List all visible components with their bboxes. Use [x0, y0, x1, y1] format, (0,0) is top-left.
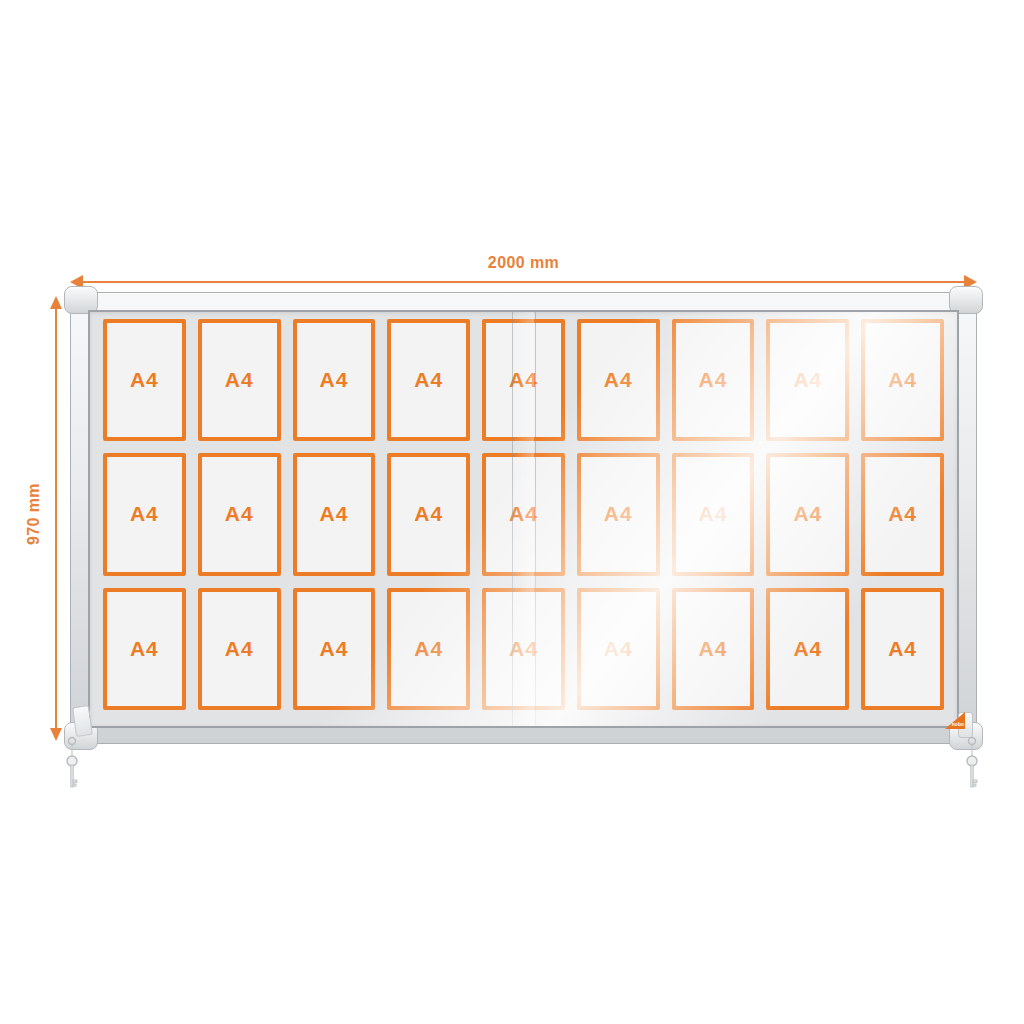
a4-slot-label: A4 — [414, 637, 443, 661]
a4-slot-label: A4 — [793, 368, 822, 392]
a4-slot-label: A4 — [888, 368, 917, 392]
a4-slot-label: A4 — [888, 637, 917, 661]
a4-slot-label: A4 — [225, 368, 254, 392]
a4-slot-label: A4 — [699, 637, 728, 661]
a4-slot: A4 — [387, 588, 470, 710]
a4-slot: A4 — [387, 319, 470, 441]
a4-slot-label: A4 — [888, 502, 917, 526]
arrow-up-icon — [50, 296, 62, 309]
a4-slot: A4 — [293, 319, 376, 441]
display-case: A4A4A4A4A4A4A4A4A4A4A4A4A4A4A4A4A4A4A4A4… — [70, 292, 977, 744]
a4-slot: A4 — [103, 319, 186, 441]
a4-slot: A4 — [672, 319, 755, 441]
a4-slot: A4 — [293, 588, 376, 710]
a4-slot: A4 — [293, 453, 376, 575]
corner-cap-top-right — [949, 286, 983, 314]
nobo-badge-label: nobo — [952, 721, 964, 727]
a4-slot-label: A4 — [699, 502, 728, 526]
a4-slot-label: A4 — [793, 637, 822, 661]
a4-slot-label: A4 — [414, 502, 443, 526]
a4-slot: A4 — [672, 453, 755, 575]
arrow-down-icon — [50, 728, 62, 741]
a4-slot-label: A4 — [130, 637, 159, 661]
height-dimension-line — [55, 303, 57, 733]
a4-slot: A4 — [861, 453, 944, 575]
a4-slot: A4 — [577, 588, 660, 710]
a4-slot: A4 — [861, 588, 944, 710]
a4-slot-label: A4 — [699, 368, 728, 392]
a4-slot: A4 — [766, 319, 849, 441]
a4-slot-label: A4 — [604, 368, 633, 392]
door-seam-sheen — [513, 312, 534, 726]
key-icon — [63, 736, 81, 798]
a4-slot: A4 — [861, 319, 944, 441]
a4-slot: A4 — [198, 588, 281, 710]
key-icon — [963, 736, 981, 798]
a4-slot-label: A4 — [604, 502, 633, 526]
a4-slot: A4 — [766, 453, 849, 575]
a4-slot-label: A4 — [604, 637, 633, 661]
a4-slot-label: A4 — [225, 637, 254, 661]
a4-slot-label: A4 — [793, 502, 822, 526]
a4-slot: A4 — [103, 453, 186, 575]
a4-slot-label: A4 — [320, 637, 349, 661]
a4-slot-label: A4 — [130, 502, 159, 526]
corner-cap-top-left — [64, 286, 98, 314]
a4-slot: A4 — [198, 453, 281, 575]
door-seam-right — [535, 312, 536, 726]
a4-slot: A4 — [766, 588, 849, 710]
a4-slot: A4 — [387, 453, 470, 575]
a4-slot: A4 — [577, 453, 660, 575]
height-dimension-label: 970 mm — [25, 483, 43, 545]
glass-interior: A4A4A4A4A4A4A4A4A4A4A4A4A4A4A4A4A4A4A4A4… — [90, 312, 957, 726]
a4-slot: A4 — [198, 319, 281, 441]
a4-slot-label: A4 — [320, 368, 349, 392]
width-dimension-label: 2000 mm — [70, 254, 977, 272]
a4-slot: A4 — [103, 588, 186, 710]
a4-slot-label: A4 — [225, 502, 254, 526]
a4-slot-label: A4 — [414, 368, 443, 392]
a4-slot: A4 — [577, 319, 660, 441]
a4-slot: A4 — [672, 588, 755, 710]
a4-slot-label: A4 — [320, 502, 349, 526]
a4-slot-label: A4 — [130, 368, 159, 392]
product-diagram: 2000 mm 970 mm A4A4A4A4A4A4A4A4A4A4A4A4A… — [0, 0, 1024, 1024]
width-dimension-line — [76, 281, 971, 283]
